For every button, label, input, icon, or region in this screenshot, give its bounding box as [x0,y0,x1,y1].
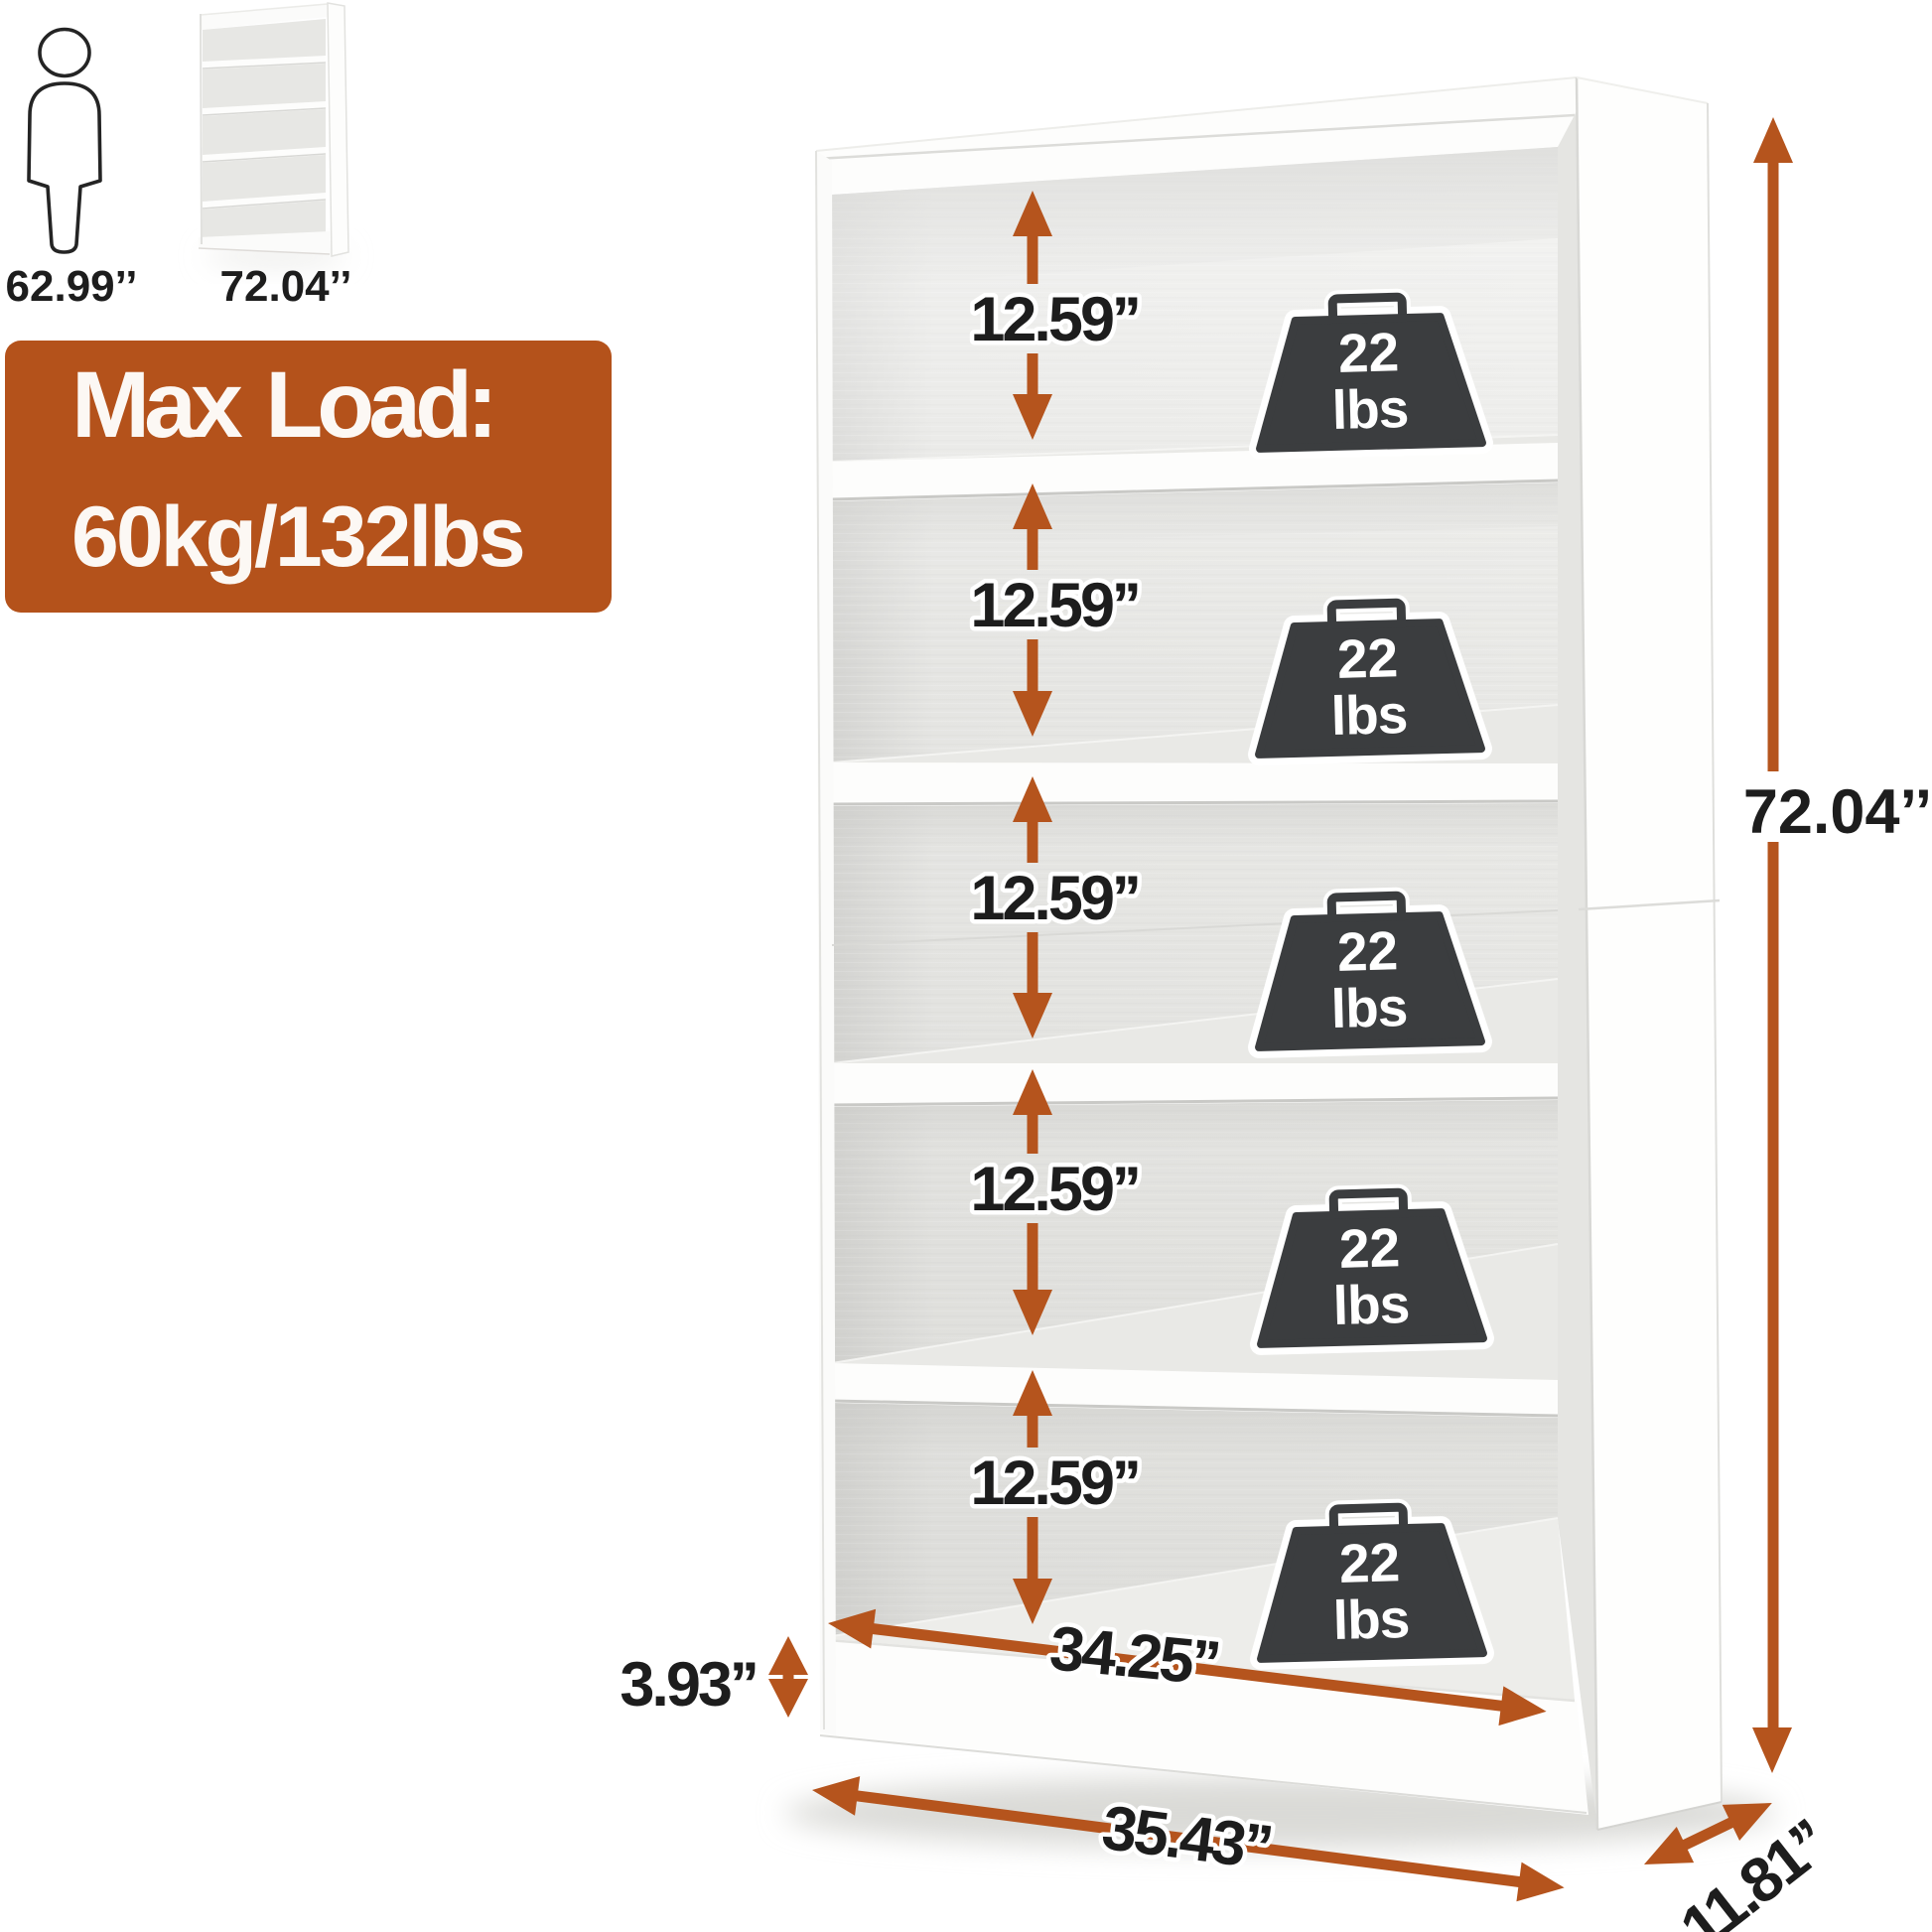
svg-text:3.93’’: 3.93’’ [620,1650,756,1720]
svg-text:12.59’’: 12.59’’ [970,571,1138,640]
svg-text:72.04’’: 72.04’’ [220,262,352,311]
svg-text:72.04’’: 72.04’’ [1743,777,1932,847]
svg-text:62.99’’: 62.99’’ [6,262,138,311]
svg-text:12.59’’: 12.59’’ [970,864,1138,933]
svg-text:60kg/132lbs: 60kg/132lbs [71,489,523,585]
svg-text:12.59’’: 12.59’’ [970,1449,1138,1518]
svg-text:Max Load:: Max Load: [71,352,492,458]
svg-text:12.59’’: 12.59’’ [970,1155,1138,1224]
svg-text:12.59’’: 12.59’’ [970,285,1138,354]
